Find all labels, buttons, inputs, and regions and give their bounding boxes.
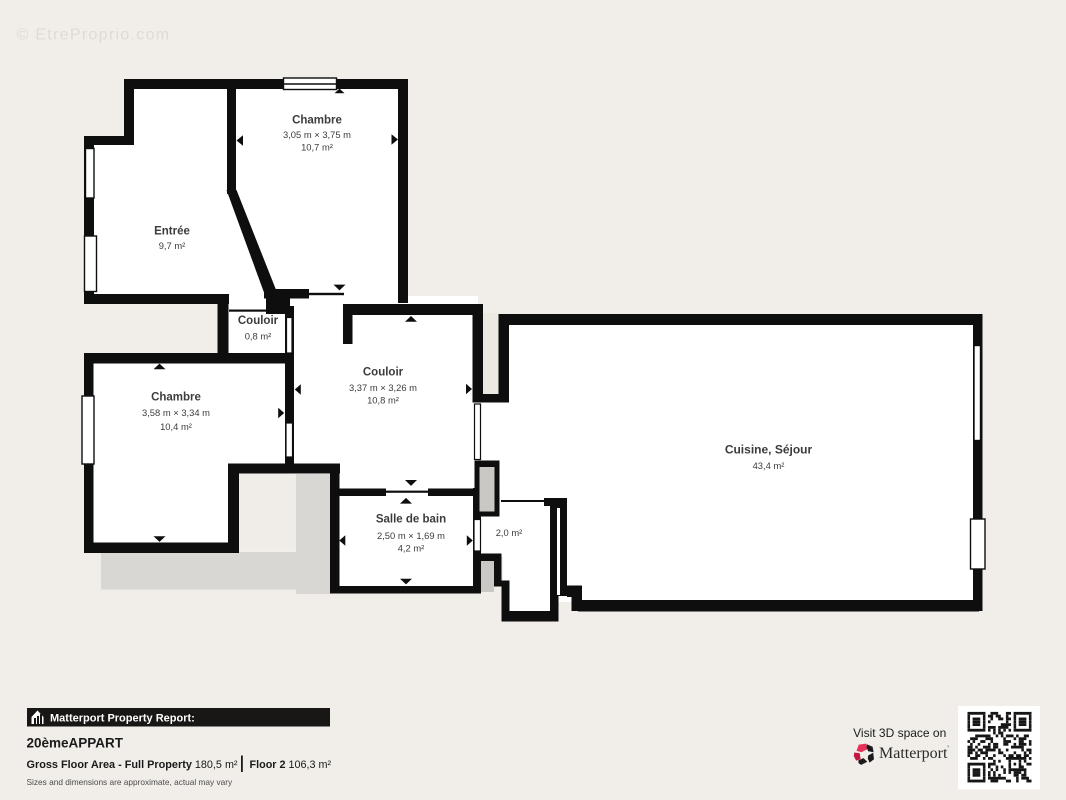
svg-text:20èmeAPPART: 20èmeAPPART [27,735,124,750]
svg-text:Entrée: Entrée [154,226,190,238]
svg-text:9,7 m²: 9,7 m² [159,240,186,251]
svg-text:Salle de bain: Salle de bain [376,514,446,526]
svg-text:Sizes and dimensions are appro: Sizes and dimensions are approximate, ac… [27,777,234,787]
svg-text:3,05 m × 3,75 m: 3,05 m × 3,75 m [283,129,351,140]
svg-text:Matterport': Matterport' [879,744,949,762]
svg-text:Couloir: Couloir [238,315,279,327]
svg-text:3,37 m × 3,26 m: 3,37 m × 3,26 m [349,382,417,393]
svg-text:Chambre: Chambre [292,115,342,127]
svg-text:4,2 m²: 4,2 m² [398,543,425,554]
svg-text:Matterport Property Report:: Matterport Property Report: [50,713,195,725]
svg-text:10,8 m²: 10,8 m² [367,395,399,406]
svg-text:Chambre: Chambre [151,392,201,404]
svg-text:10,4 m²: 10,4 m² [160,421,192,432]
svg-text:43,4 m²: 43,4 m² [753,460,785,471]
svg-text:2,50 m × 1,69 m: 2,50 m × 1,69 m [377,530,445,541]
svg-text:Gross Floor Area - Full Proper: Gross Floor Area - Full Property 180,5 m… [27,759,238,771]
svg-text:10,7 m²: 10,7 m² [301,142,333,153]
svg-text:© EtreProprio.com: © EtreProprio.com [17,27,171,44]
svg-text:Cuisine, Séjour: Cuisine, Séjour [725,443,813,457]
svg-text:3,58 m × 3,34 m: 3,58 m × 3,34 m [142,407,210,418]
svg-text:0,8 m²: 0,8 m² [245,331,272,342]
svg-text:Couloir: Couloir [363,367,404,379]
svg-text:Floor 2 106,3 m²: Floor 2 106,3 m² [250,759,332,771]
svg-text:2,0 m²: 2,0 m² [496,527,523,538]
svg-text:Visit 3D space on: Visit 3D space on [853,726,946,740]
